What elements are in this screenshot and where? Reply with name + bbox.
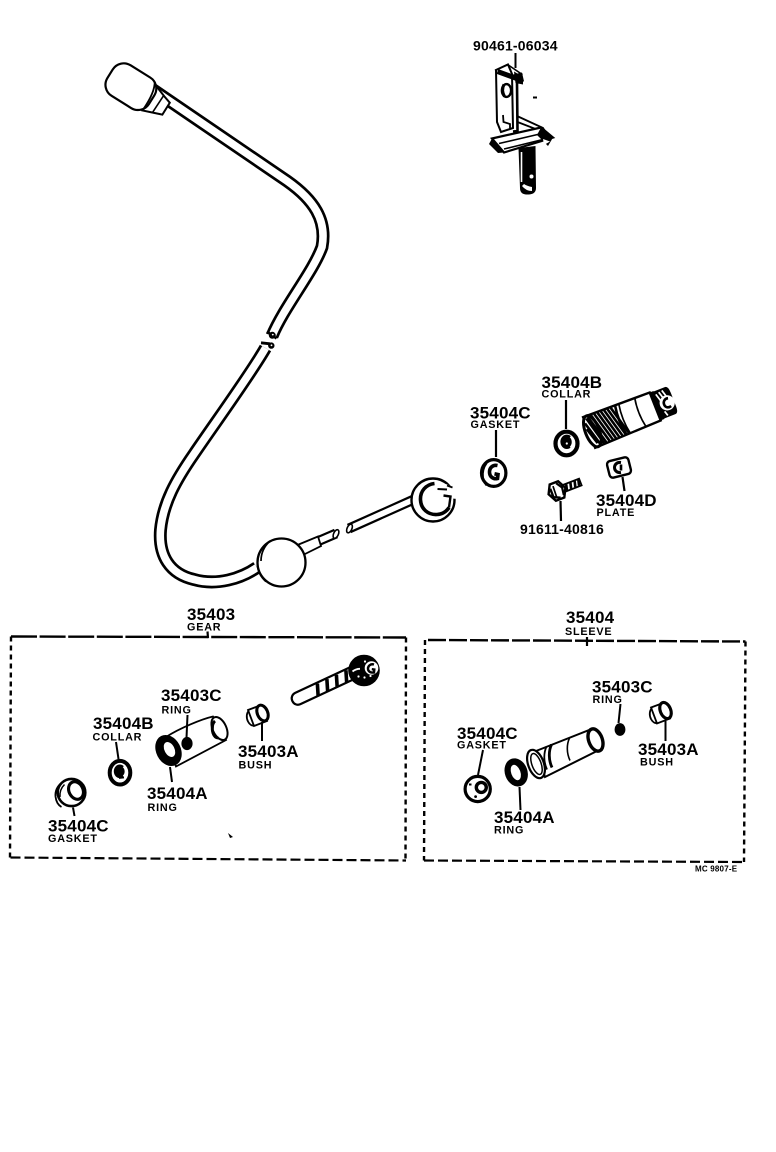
svg-text:GASKET: GASKET <box>457 740 507 752</box>
svg-text:91611-40816: 91611-40816 <box>520 521 604 537</box>
svg-text:GASKET: GASKET <box>48 833 98 845</box>
svg-text:PLATE: PLATE <box>597 507 636 519</box>
svg-text:COLLAR: COLLAR <box>542 389 592 401</box>
svg-text:COLLAR: COLLAR <box>93 732 143 744</box>
svg-text:MC 9807-E: MC 9807-E <box>695 865 738 874</box>
svg-text:35404: 35404 <box>566 608 615 627</box>
svg-text:35404A: 35404A <box>147 784 208 803</box>
svg-text:RING: RING <box>148 802 178 814</box>
svg-text:SLEEVE: SLEEVE <box>565 626 612 638</box>
svg-text:90461-06034: 90461-06034 <box>473 38 558 54</box>
svg-text:GEAR: GEAR <box>187 622 221 634</box>
svg-text:RING: RING <box>593 694 623 706</box>
svg-text:BUSH: BUSH <box>239 760 273 772</box>
svg-text:RING: RING <box>494 825 524 837</box>
svg-text:BUSH: BUSH <box>640 757 674 769</box>
svg-text:35403C: 35403C <box>161 686 222 705</box>
svg-text:35404B: 35404B <box>93 714 154 733</box>
svg-text:35403A: 35403A <box>238 742 299 761</box>
svg-text:RING: RING <box>162 705 192 717</box>
svg-text:GASKET: GASKET <box>471 419 521 431</box>
